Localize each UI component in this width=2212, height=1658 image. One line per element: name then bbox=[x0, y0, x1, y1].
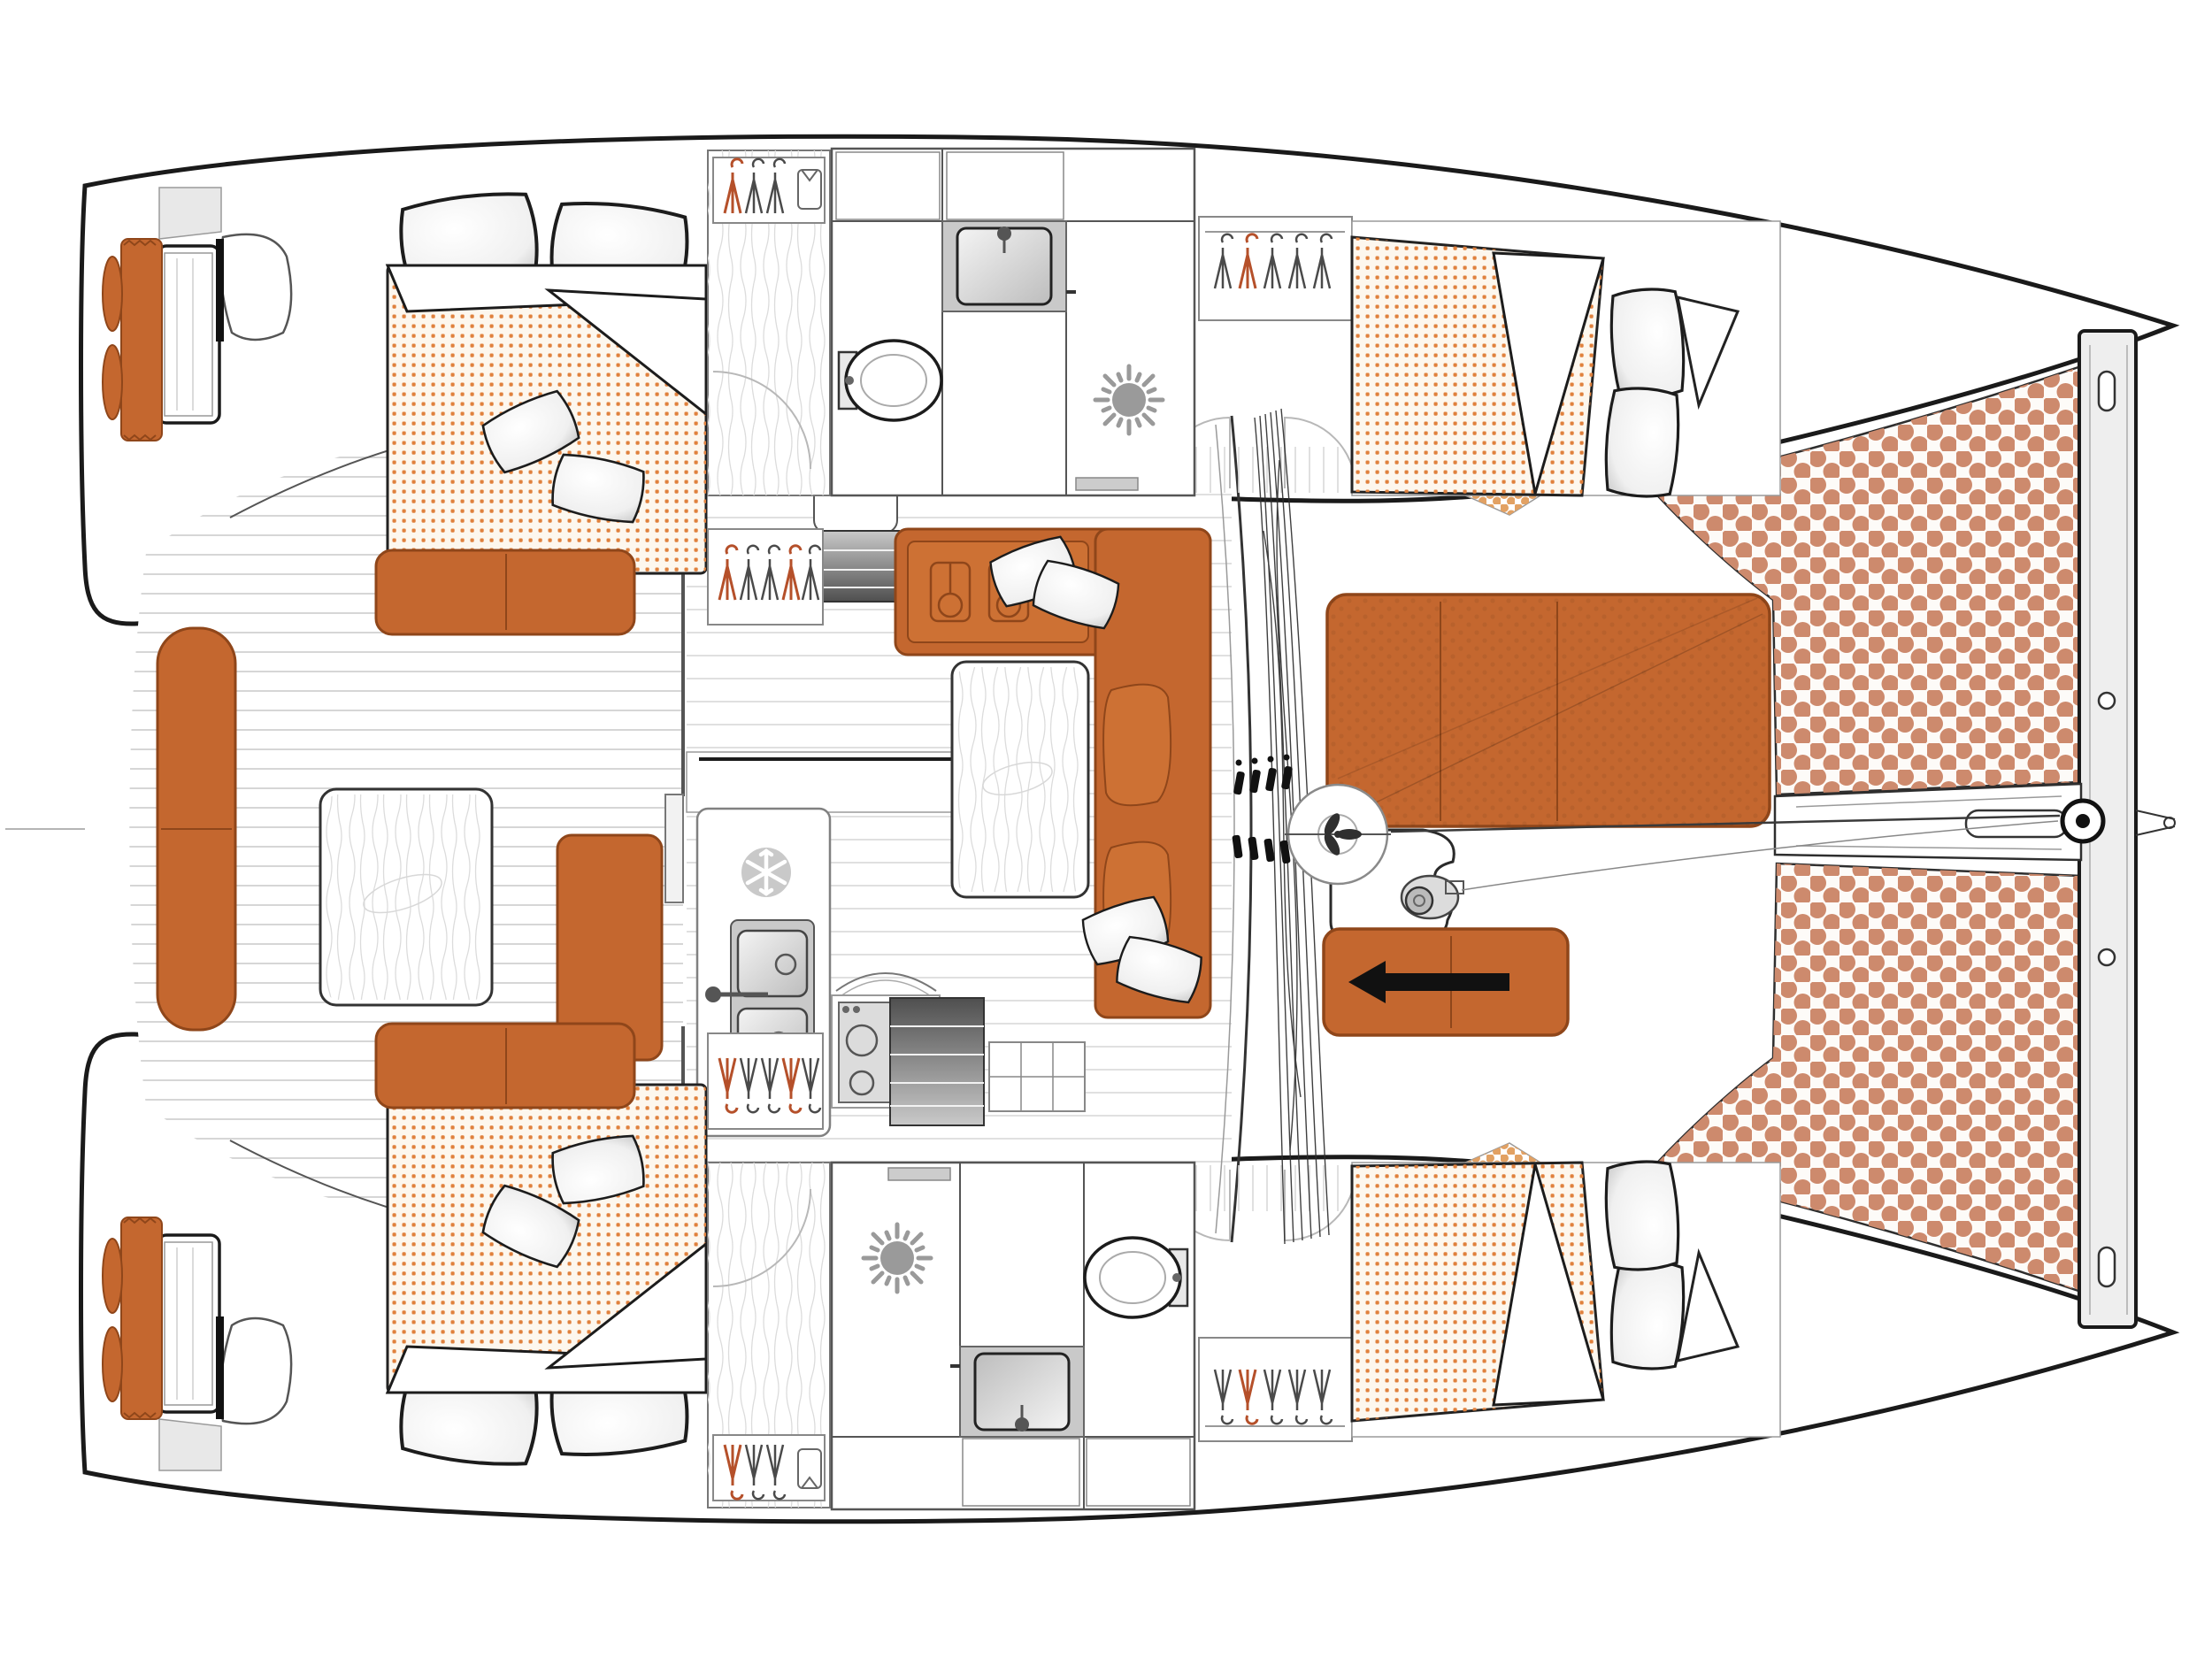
washbasin-icon bbox=[942, 221, 1066, 311]
pillow-icon bbox=[1603, 387, 1681, 499]
starboard-bathroom bbox=[832, 1163, 1194, 1509]
transom-pad bbox=[103, 257, 122, 331]
companionway-port[interactable] bbox=[814, 485, 899, 602]
salon-table bbox=[952, 662, 1088, 897]
helm-console bbox=[216, 239, 224, 342]
transom-pad bbox=[103, 345, 122, 419]
pillow-icon bbox=[1609, 288, 1686, 400]
beam-bolt bbox=[2099, 949, 2115, 965]
sofa-back-cushion bbox=[1103, 685, 1171, 806]
catamaran-floor-plan bbox=[0, 0, 2212, 1658]
hanging-locker-forward bbox=[1199, 217, 1352, 320]
faucet-icon bbox=[705, 986, 721, 1002]
helm-seat bbox=[221, 234, 292, 340]
deck-hatch bbox=[1324, 929, 1568, 1035]
wardrobe bbox=[708, 150, 830, 625]
beam-slot bbox=[2099, 372, 2115, 411]
beam-slot bbox=[2099, 1247, 2115, 1286]
toilet-icon bbox=[839, 341, 941, 420]
cockpit-table bbox=[320, 789, 492, 1005]
companionway-starboard[interactable] bbox=[890, 998, 984, 1125]
cabinet bbox=[836, 152, 940, 219]
transom-cushion bbox=[121, 239, 162, 441]
sliding-door[interactable] bbox=[665, 794, 683, 902]
floor-plan-canvas bbox=[0, 0, 2212, 1658]
bathroom bbox=[832, 149, 1194, 495]
shirt-icon bbox=[798, 170, 821, 209]
snowflake-fridge-icon bbox=[741, 848, 791, 897]
transom-step bbox=[157, 246, 219, 423]
beam-bolt bbox=[2099, 693, 2115, 709]
forward-cabin bbox=[1352, 221, 1780, 498]
mirror-cabinet bbox=[947, 152, 1064, 219]
